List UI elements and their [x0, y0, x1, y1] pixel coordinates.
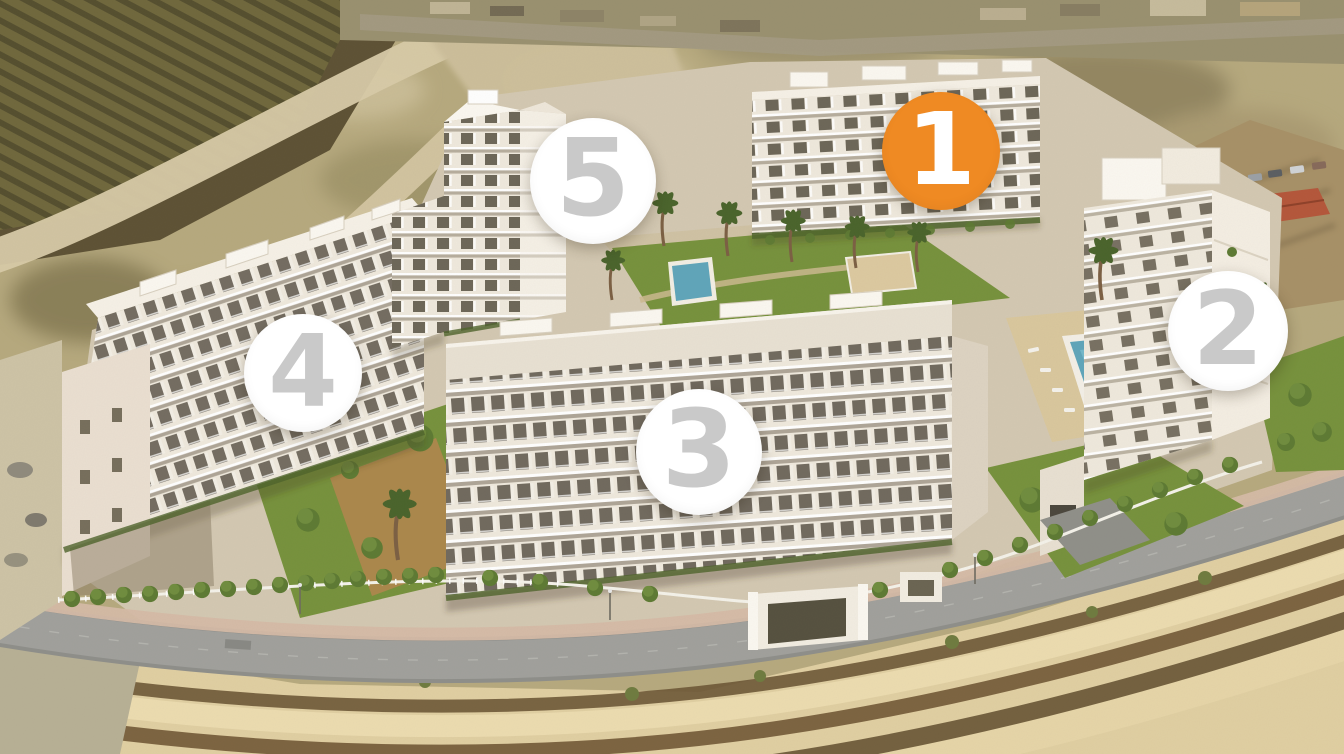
film-grain-overlay [0, 0, 1344, 754]
phase-4-number: 4 [268, 313, 338, 430]
phase-marker-1[interactable]: 1 [882, 92, 1000, 210]
phase-marker-3[interactable]: 3 [636, 389, 762, 515]
phase-3-number: 3 [662, 388, 736, 512]
aerial-render-viewport: 1 2 3 4 5 [0, 0, 1344, 754]
phase-1-number: 1 [906, 91, 976, 208]
phase-marker-4[interactable]: 4 [244, 314, 362, 432]
phase-marker-2[interactable]: 2 [1168, 271, 1288, 391]
phase-2-number: 2 [1193, 270, 1264, 389]
phase-5-number: 5 [556, 117, 630, 241]
aerial-render [0, 0, 1344, 754]
phase-marker-5[interactable]: 5 [530, 118, 656, 244]
